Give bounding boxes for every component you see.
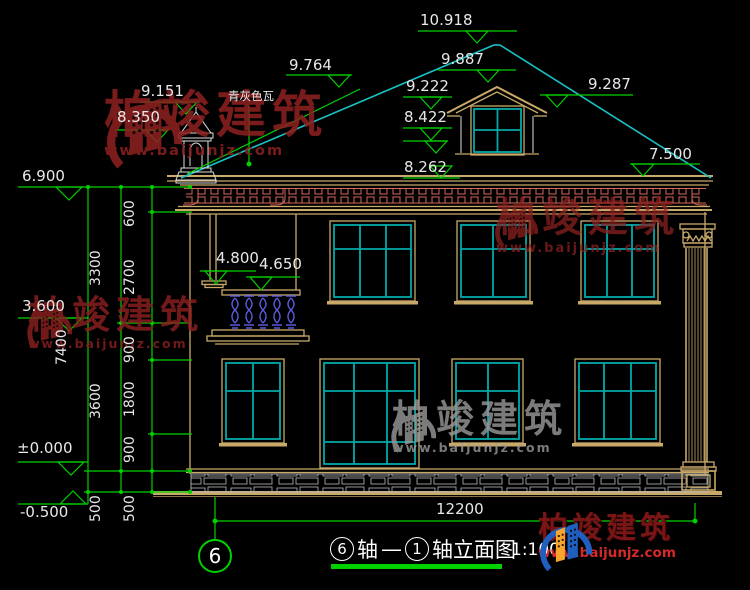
cupola bbox=[176, 107, 216, 183]
title-dash: — bbox=[381, 537, 402, 561]
dim-f1-sill: 900 bbox=[123, 436, 137, 463]
dim-plinth-b: 500 bbox=[123, 495, 137, 522]
elevation-linework bbox=[0, 0, 750, 590]
elevation-floor2: 3.600 bbox=[22, 299, 65, 314]
column bbox=[680, 224, 716, 490]
elevation-balcony-cap: 4.800 bbox=[216, 251, 259, 266]
elevation-eave-top: 8.262 bbox=[404, 160, 447, 175]
elevation-slope-right: 9.287 bbox=[588, 77, 631, 92]
elevation-ridge: 10.918 bbox=[420, 13, 473, 28]
roof-material-label: 青灰色瓦 bbox=[228, 91, 274, 103]
dim-total-height: 7400 bbox=[55, 329, 69, 365]
grid-bubble-6: 6 bbox=[198, 539, 232, 573]
title-suffix: 轴立面图 bbox=[432, 534, 516, 564]
window-sill bbox=[219, 443, 287, 447]
elevation-wall-top: 6.900 bbox=[22, 169, 65, 184]
elevation-dormer-eave: 9.222 bbox=[406, 79, 449, 94]
dim-f2-total: 3300 bbox=[89, 250, 103, 286]
elevation-ground: ±0.000 bbox=[17, 441, 73, 456]
grid-bubble-label: 6 bbox=[209, 544, 222, 568]
window-1f-large bbox=[320, 359, 419, 468]
dim-f1-total: 3600 bbox=[89, 383, 103, 419]
elevation-cupola-top: 9.151 bbox=[141, 84, 184, 99]
title-axis-bubble-right: 1 bbox=[405, 537, 429, 561]
elevation-cupola-base: 8.350 bbox=[117, 110, 160, 125]
elevation-site: -0.500 bbox=[20, 505, 68, 520]
dim-total-width: 12200 bbox=[436, 502, 484, 517]
elevation-eave-right: 7.500 bbox=[649, 147, 692, 162]
dormer bbox=[447, 87, 547, 155]
cad-elevation-drawing: 柏竣建筑 www.baijunjz.com 柏竣建筑 www.baijunjz.… bbox=[0, 0, 750, 590]
dim-upper-band: 600 bbox=[123, 200, 137, 227]
window-sill bbox=[578, 301, 661, 305]
window-2f-right bbox=[578, 221, 661, 305]
balcony-balusters bbox=[230, 296, 296, 328]
title-underline bbox=[331, 564, 502, 569]
elevation-balcony-rail: 4.650 bbox=[259, 257, 302, 272]
cornice-dentils bbox=[186, 189, 704, 203]
window-sill bbox=[327, 301, 418, 305]
dim-f1-window-zone: 1800 bbox=[123, 381, 137, 417]
dormer-window bbox=[471, 106, 524, 155]
window-1f-middle bbox=[449, 359, 526, 447]
dim-f2-window-zone: 2700 bbox=[123, 259, 137, 295]
window-2f-middle bbox=[454, 221, 533, 305]
drawing-title: 6 轴 — 1 轴立面图 bbox=[330, 534, 516, 564]
window-2f-left bbox=[327, 221, 418, 305]
elevation-dormer-sill: 8.422 bbox=[404, 110, 447, 125]
balcony-slab bbox=[212, 330, 304, 336]
window-sill bbox=[572, 443, 663, 447]
balcony bbox=[202, 214, 309, 344]
title-axis-bubble-left: 6 bbox=[330, 537, 354, 561]
window-sill bbox=[454, 301, 533, 305]
elevation-slope-left: 9.764 bbox=[289, 58, 332, 73]
brand-logo-icon bbox=[534, 514, 592, 578]
dim-spandrel: 900 bbox=[123, 336, 137, 363]
window-1f-right bbox=[572, 359, 663, 447]
brand-logo: 柏竣建筑 www.baijunjz.com bbox=[534, 514, 676, 561]
dim-plinth-a: 500 bbox=[89, 495, 103, 522]
stone-plinth bbox=[191, 474, 708, 492]
eave-cornice bbox=[167, 176, 713, 214]
elevation-dormer-ridge: 9.887 bbox=[441, 52, 484, 67]
window-1f-left bbox=[219, 359, 287, 447]
title-axis-word: 轴 bbox=[357, 534, 378, 564]
window-sill bbox=[449, 443, 526, 447]
